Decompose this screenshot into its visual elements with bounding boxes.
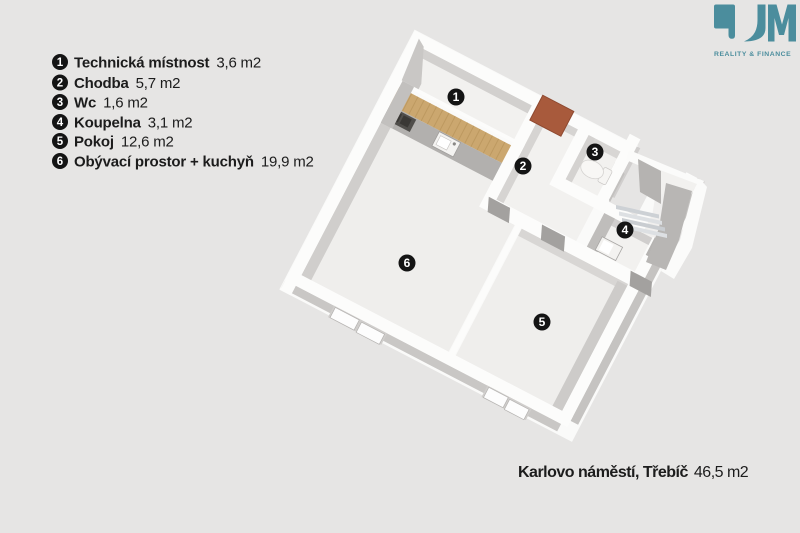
svg-text:3: 3 (57, 97, 63, 109)
svg-text:6: 6 (57, 156, 63, 168)
svg-text:1: 1 (57, 57, 64, 69)
svg-text:REALITY & FINANCE: REALITY & FINANCE (714, 51, 791, 58)
svg-text:Pokoj12,6 m2: Pokoj12,6 m2 (74, 134, 174, 151)
svg-text:Chodba5,7 m2: Chodba5,7 m2 (74, 75, 180, 92)
svg-text:6: 6 (404, 256, 411, 270)
svg-text:5: 5 (539, 315, 546, 329)
svg-text:4: 4 (57, 117, 64, 129)
svg-text:Karlovo náměstí, Třebíč46,5 m2: Karlovo náměstí, Třebíč46,5 m2 (518, 464, 749, 481)
svg-text:3: 3 (592, 145, 599, 159)
svg-text:2: 2 (520, 159, 527, 173)
svg-text:2: 2 (57, 78, 63, 90)
svg-text:4: 4 (622, 223, 629, 237)
svg-text:Technická místnost3,6 m2: Technická místnost3,6 m2 (74, 55, 261, 72)
svg-text:Obývací prostor + kuchyň19,9 m: Obývací prostor + kuchyň19,9 m2 (74, 154, 314, 171)
svg-text:5: 5 (57, 136, 64, 148)
svg-text:Koupelna3,1 m2: Koupelna3,1 m2 (74, 115, 192, 132)
svg-text:Wc1,6 m2: Wc1,6 m2 (74, 95, 148, 112)
svg-text:1: 1 (453, 90, 460, 104)
